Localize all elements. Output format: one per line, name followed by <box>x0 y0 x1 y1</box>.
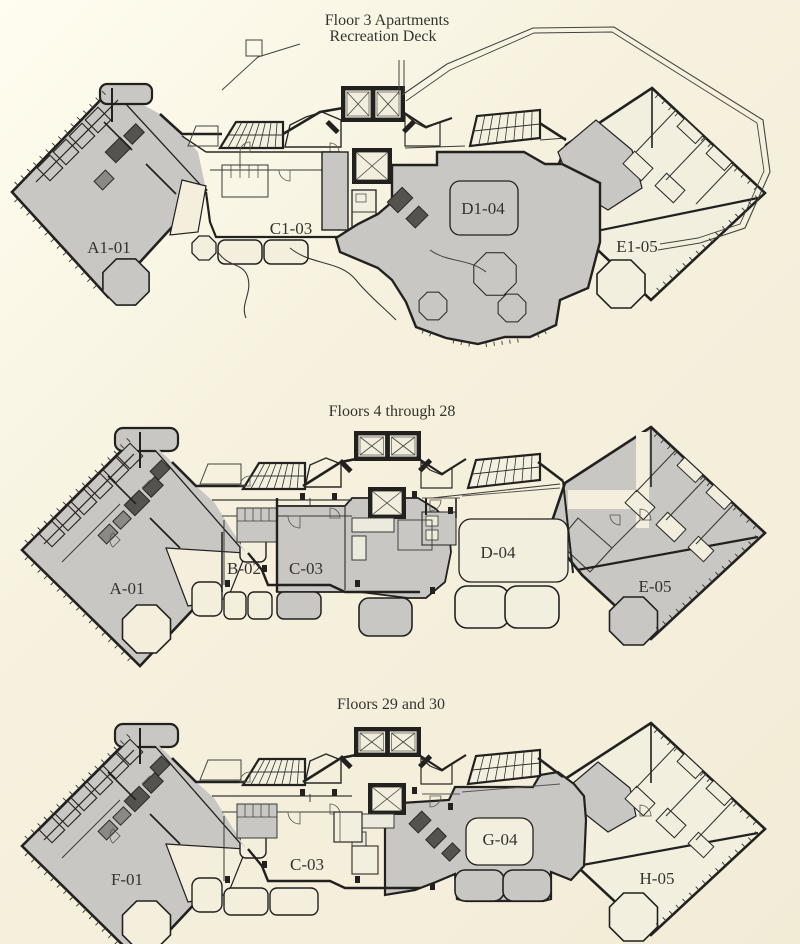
svg-text:C-03: C-03 <box>289 559 323 578</box>
svg-text:Floors 4 through 28: Floors 4 through 28 <box>329 403 456 420</box>
svg-text:C-03: C-03 <box>290 855 324 874</box>
svg-text:E-05: E-05 <box>638 577 671 596</box>
svg-text:Recreation Deck: Recreation Deck <box>329 28 436 45</box>
svg-text:D1-04: D1-04 <box>461 199 505 218</box>
svg-text:G-04: G-04 <box>483 830 518 849</box>
svg-text:D-04: D-04 <box>481 543 516 562</box>
svg-text:Floor 3 Apartments: Floor 3 Apartments <box>325 12 449 29</box>
svg-text:B-02: B-02 <box>227 559 261 578</box>
svg-text:E1-05: E1-05 <box>616 237 658 256</box>
svg-text:A1-01: A1-01 <box>87 238 130 257</box>
svg-text:A-01: A-01 <box>110 579 145 598</box>
svg-text:C1-03: C1-03 <box>270 219 313 238</box>
svg-text:Floors 29 and 30: Floors 29 and 30 <box>337 696 445 713</box>
svg-text:F-01: F-01 <box>111 870 143 889</box>
svg-text:H-05: H-05 <box>640 869 675 888</box>
